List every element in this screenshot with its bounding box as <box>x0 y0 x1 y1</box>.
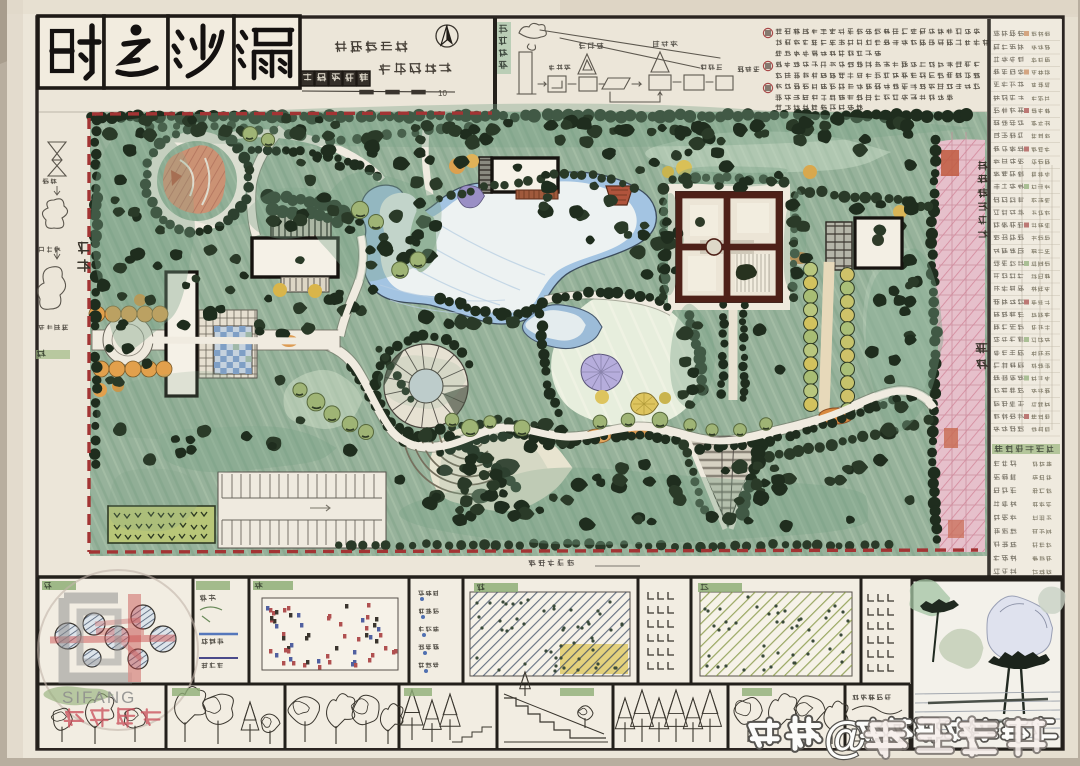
svg-text:10: 10 <box>438 89 447 98</box>
svg-text:SIFANG: SIFANG <box>62 688 136 707</box>
